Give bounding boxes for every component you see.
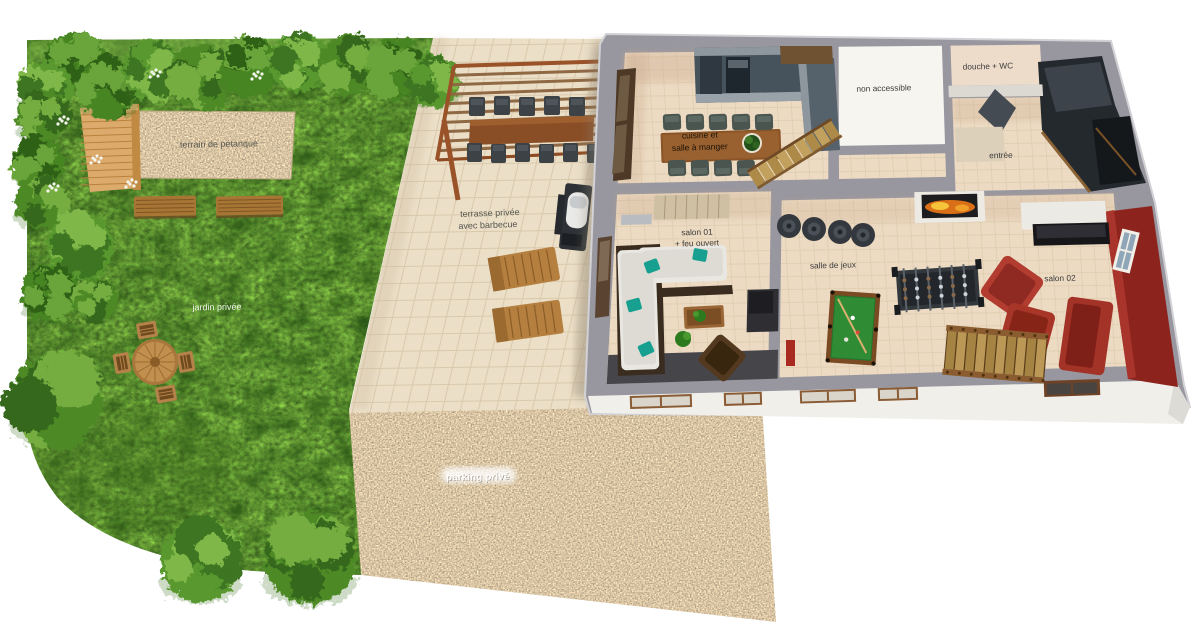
svg-text:salon 02: salon 02 (1044, 273, 1076, 284)
svg-text:entrée: entrée (989, 150, 1013, 161)
svg-text:+ feu ouvert: + feu ouvert (675, 237, 720, 248)
svg-text:salle à manger: salle à manger (672, 141, 728, 153)
svg-text:avec barbecue: avec barbecue (458, 219, 517, 231)
svg-text:terrain de pétanque: terrain de pétanque (180, 138, 258, 149)
svg-text:parking privé: parking privé (446, 471, 510, 483)
svg-text:jardin privée: jardin privée (191, 302, 241, 313)
svg-text:salle de jeux: salle de jeux (810, 259, 857, 270)
svg-text:cuisine et: cuisine et (682, 129, 719, 140)
svg-text:salon 01: salon 01 (681, 227, 713, 238)
svg-text:terrasse privée: terrasse privée (460, 207, 520, 219)
svg-text:douche + WC: douche + WC (963, 60, 1014, 71)
svg-text:non accessible: non accessible (856, 82, 912, 93)
